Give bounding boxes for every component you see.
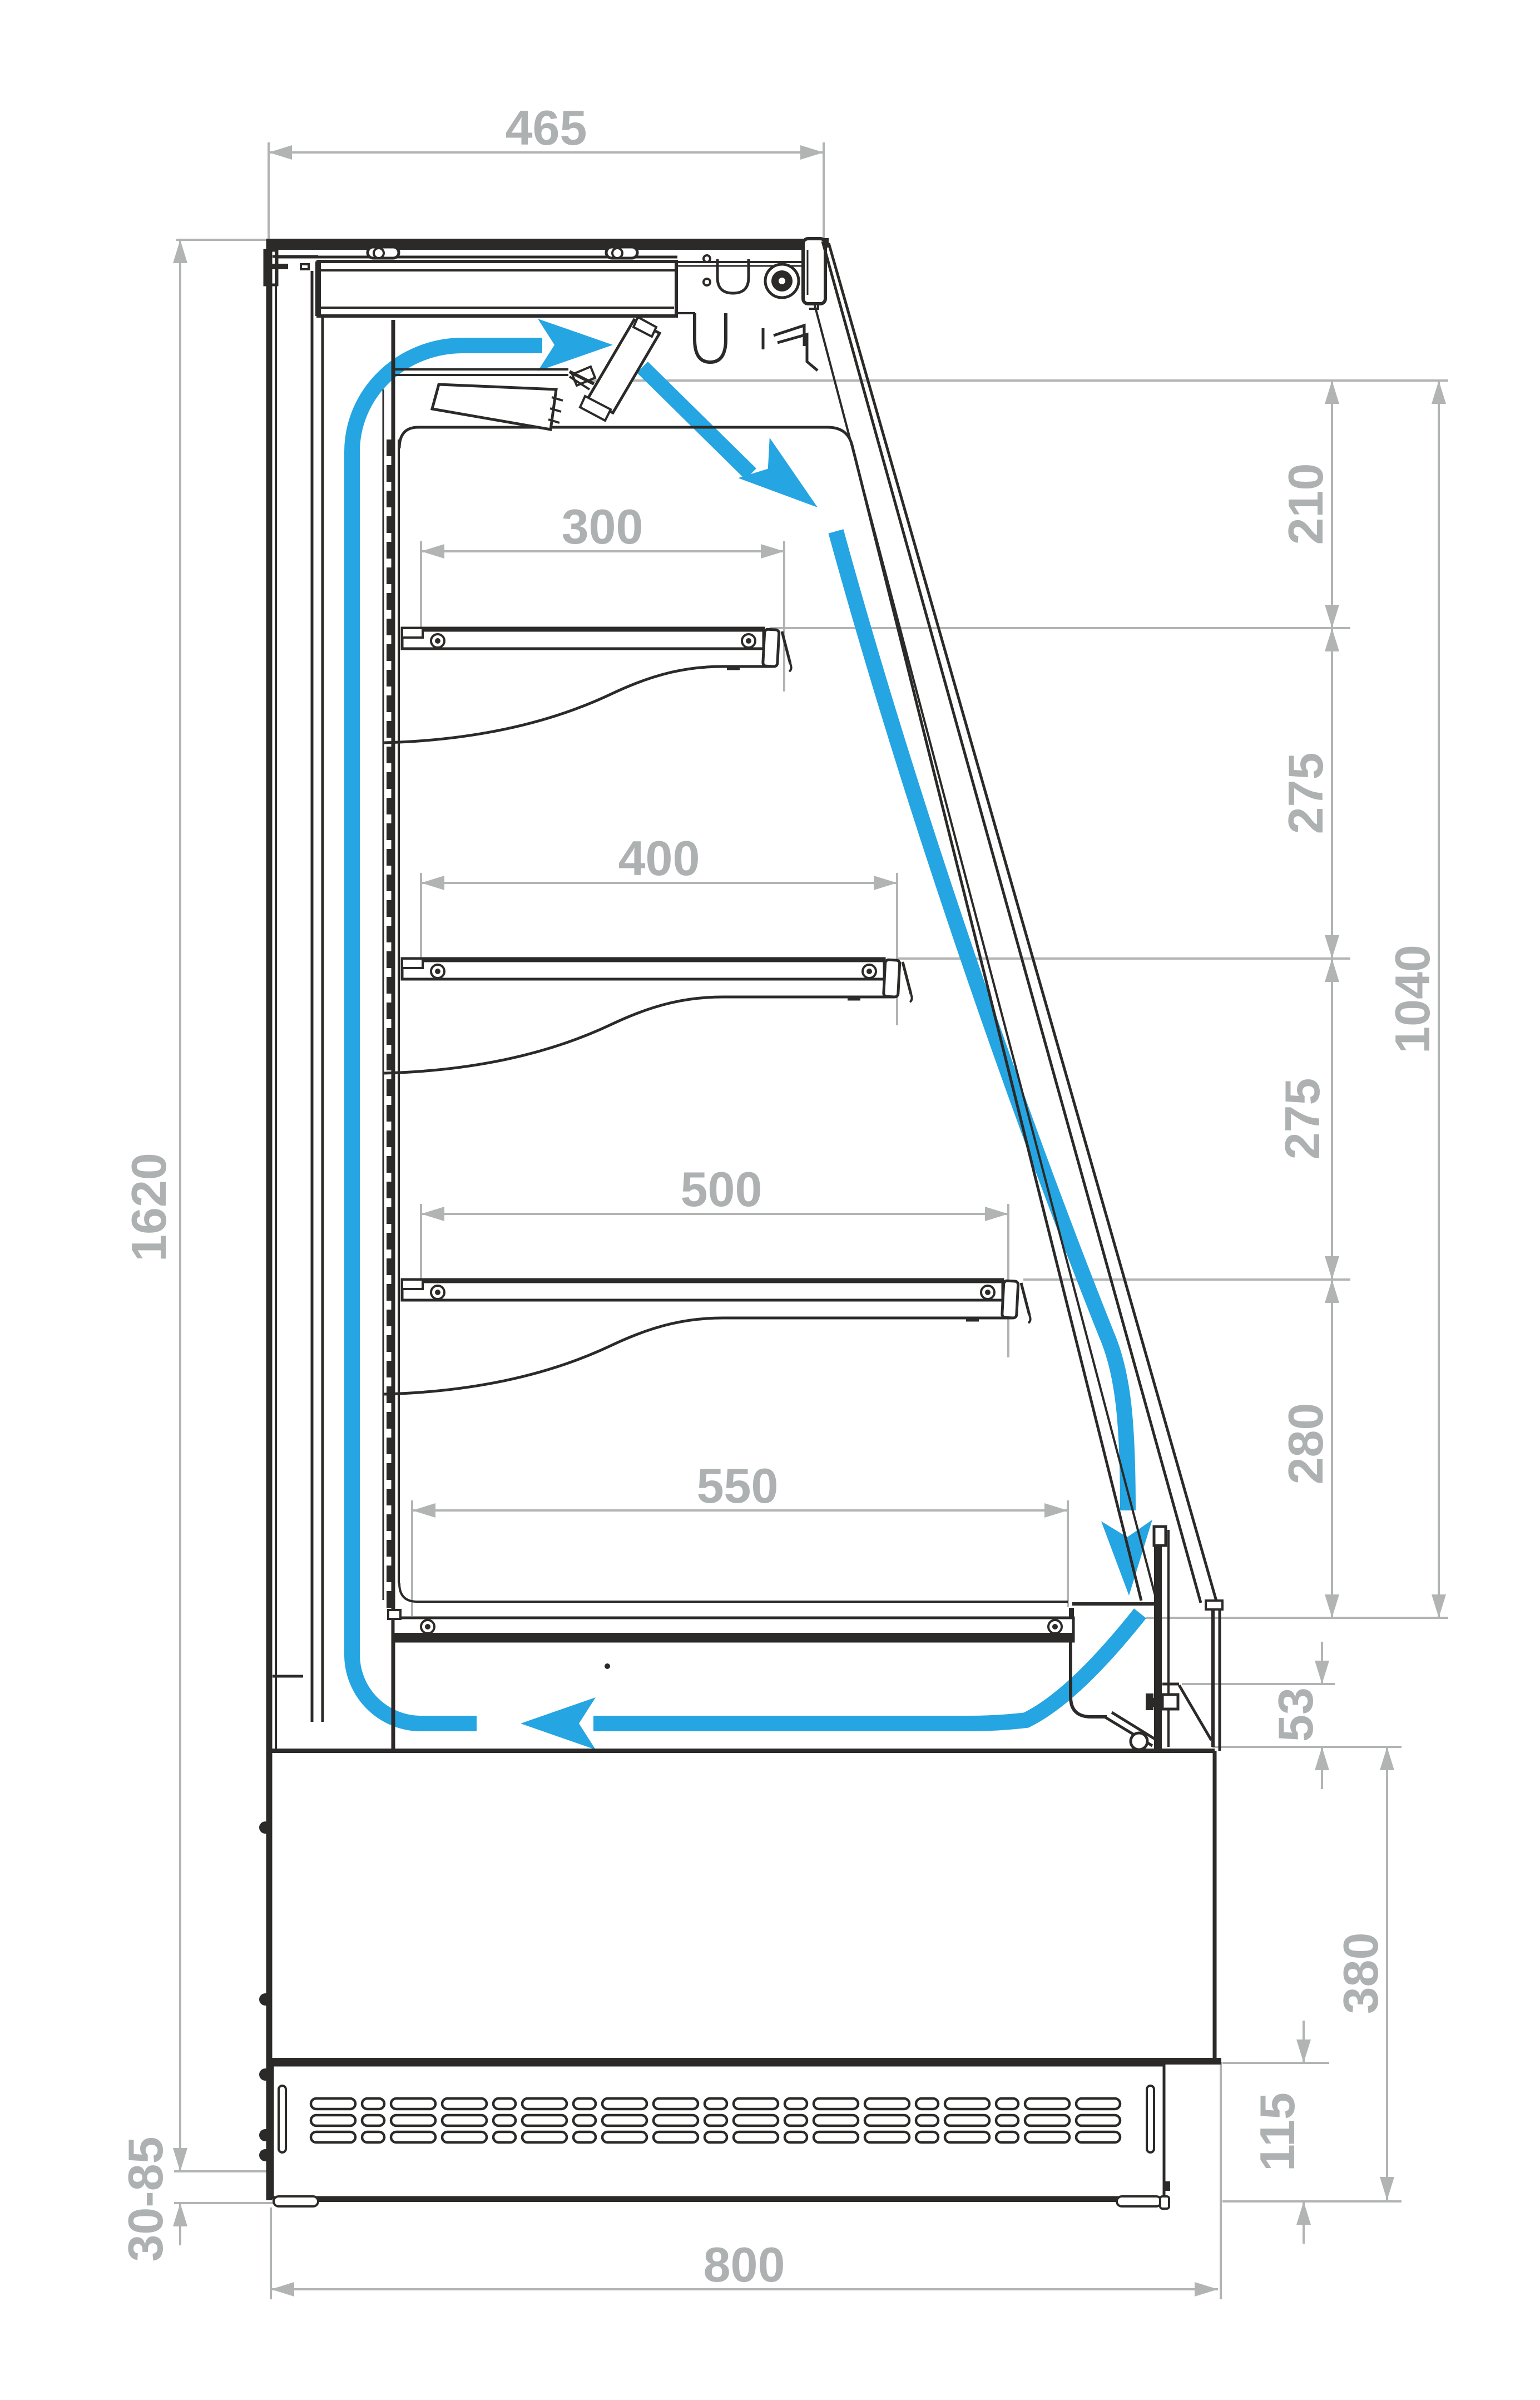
svg-text:800: 800 [704, 2237, 785, 2292]
svg-text:53: 53 [1268, 1687, 1323, 1742]
svg-text:280: 280 [1278, 1403, 1333, 1485]
svg-text:210: 210 [1278, 463, 1333, 545]
svg-text:300: 300 [562, 499, 643, 554]
svg-text:500: 500 [681, 1162, 762, 1217]
svg-text:275: 275 [1275, 1078, 1330, 1160]
svg-text:465: 465 [506, 100, 587, 155]
svg-text:550: 550 [697, 1458, 779, 1513]
svg-text:1620: 1620 [121, 1153, 176, 1262]
svg-text:115: 115 [1250, 2092, 1305, 2171]
svg-text:1040: 1040 [1385, 945, 1440, 1054]
svg-text:30-85: 30-85 [118, 2136, 173, 2261]
svg-text:400: 400 [618, 831, 700, 886]
svg-text:275: 275 [1278, 753, 1333, 834]
svg-text:380: 380 [1333, 1933, 1388, 2014]
